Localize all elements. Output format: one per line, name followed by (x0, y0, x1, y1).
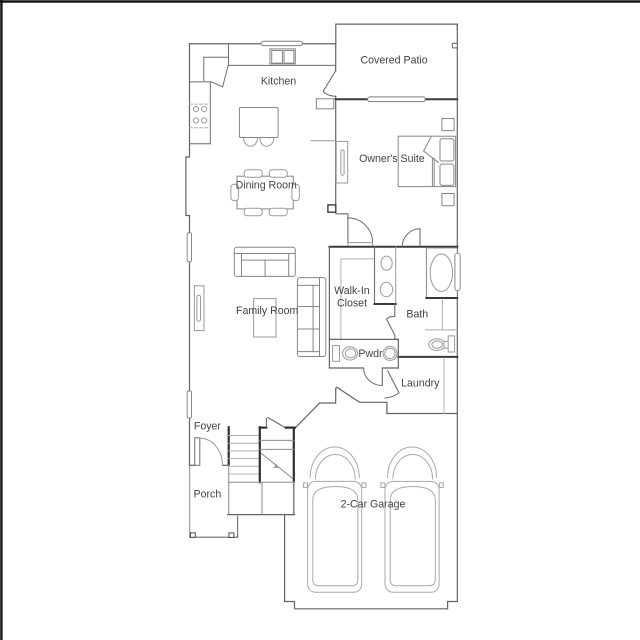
svg-text:Pwdr: Pwdr (358, 348, 383, 360)
svg-text:Kitchen: Kitchen (261, 75, 296, 87)
svg-text:Walk-In: Walk-In (334, 285, 370, 297)
svg-text:Laundry: Laundry (401, 378, 440, 390)
svg-text:Covered Patio: Covered Patio (361, 55, 428, 67)
svg-text:Owner's Suite: Owner's Suite (359, 153, 425, 165)
svg-text:Family Room: Family Room (236, 305, 299, 317)
svg-text:Foyer: Foyer (194, 421, 222, 433)
svg-text:2-Car Garage: 2-Car Garage (341, 499, 406, 511)
svg-text:Porch: Porch (194, 488, 222, 500)
svg-text:Bath: Bath (406, 309, 428, 321)
svg-text:Dining Room: Dining Room (236, 179, 297, 191)
svg-text:Closet: Closet (337, 297, 367, 309)
